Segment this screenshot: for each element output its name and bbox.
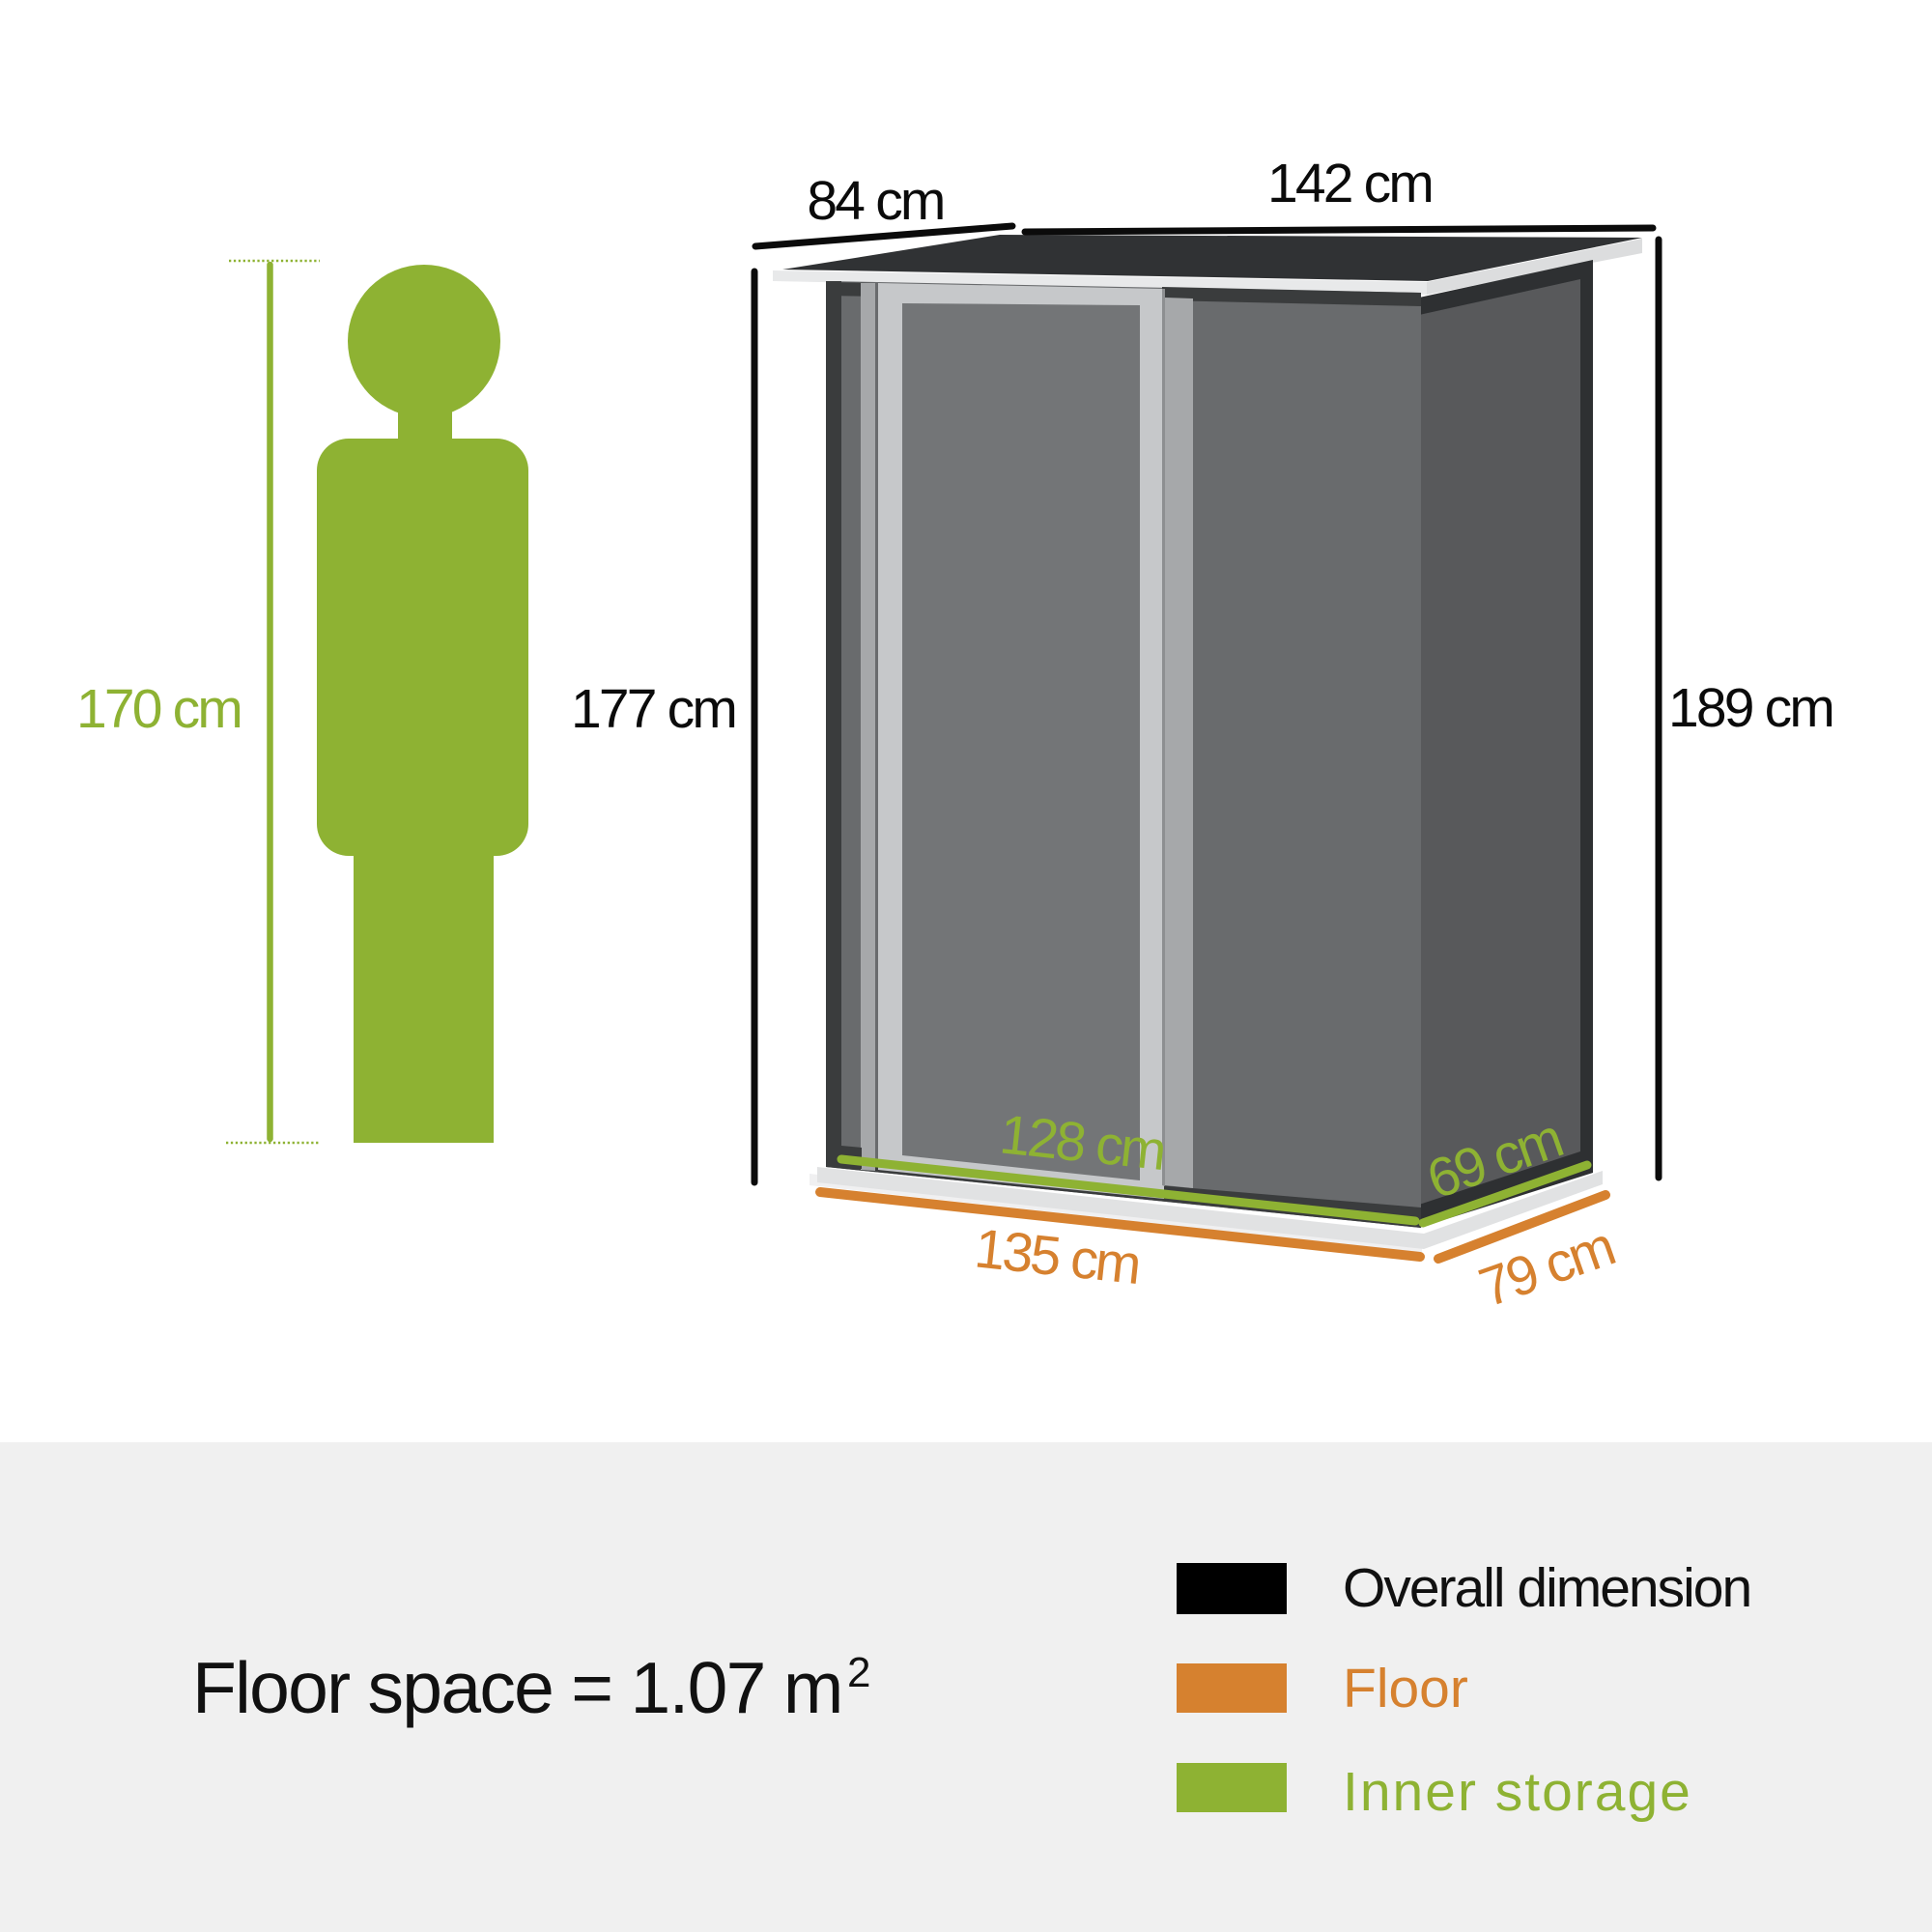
svg-text:Inner storage: Inner storage [1343, 1761, 1692, 1823]
svg-text:2: 2 [847, 1649, 870, 1696]
svg-text:177 cm: 177 cm [571, 678, 735, 740]
svg-text:142 cm: 142 cm [1267, 153, 1432, 214]
svg-text:Floor: Floor [1343, 1658, 1468, 1719]
svg-text:189 cm: 189 cm [1668, 677, 1833, 739]
svg-text:84 cm: 84 cm [807, 170, 943, 232]
svg-text:Overall dimension: Overall dimension [1343, 1557, 1750, 1619]
svg-text:170 cm: 170 cm [76, 678, 241, 740]
svg-text:Floor space = 1.07 m: Floor space = 1.07 m [192, 1647, 842, 1728]
